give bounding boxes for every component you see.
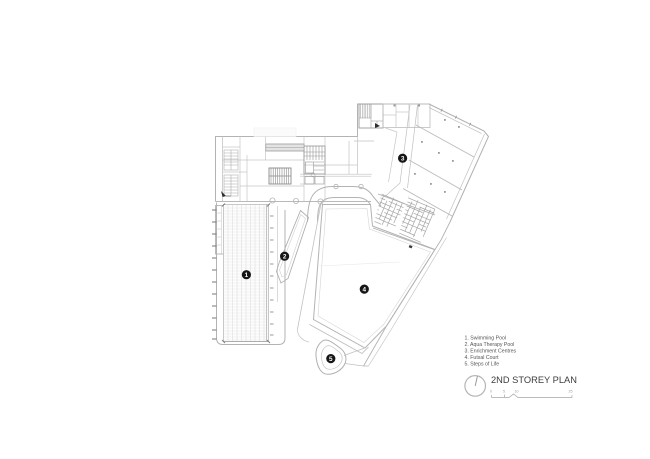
- svg-text:5: 5: [329, 356, 333, 363]
- svg-text:4. Futsal Court: 4. Futsal Court: [465, 355, 500, 361]
- svg-text:3. Enrichment Centres: 3. Enrichment Centres: [465, 349, 517, 355]
- svg-text:0: 0: [490, 390, 492, 394]
- svg-text:5: 5: [503, 390, 505, 394]
- svg-text:25: 25: [569, 390, 573, 394]
- svg-text:2: 2: [283, 254, 287, 261]
- svg-text:2ND STOREY PLAN: 2ND STOREY PLAN: [491, 375, 577, 385]
- svg-text:1: 1: [245, 272, 249, 279]
- svg-text:4: 4: [363, 287, 367, 294]
- svg-text:5. Steps of Life: 5. Steps of Life: [465, 362, 500, 368]
- svg-text:3: 3: [401, 156, 405, 163]
- svg-text:10: 10: [515, 390, 519, 394]
- svg-text:1. Swimming Pool: 1. Swimming Pool: [465, 336, 507, 342]
- svg-text:2. Aqua Therapy Pool: 2. Aqua Therapy Pool: [465, 342, 515, 348]
